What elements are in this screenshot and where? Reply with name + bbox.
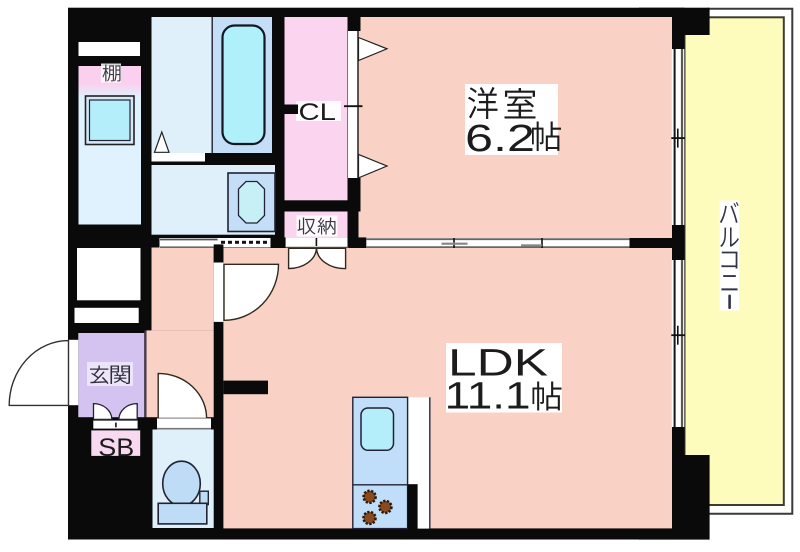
svg-text:CL: CL [299, 99, 337, 126]
svg-text:11.1: 11.1 [445, 376, 531, 418]
svg-text:6.2: 6.2 [465, 118, 535, 160]
svg-text:SB: SB [98, 434, 134, 462]
